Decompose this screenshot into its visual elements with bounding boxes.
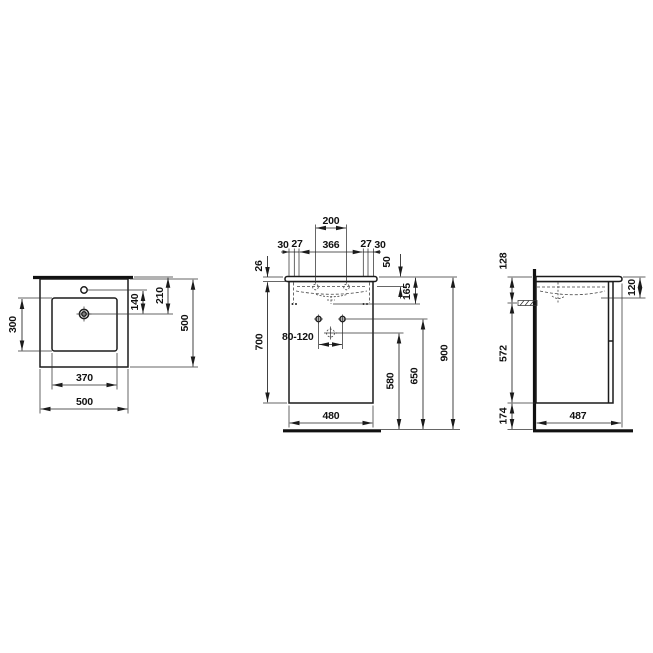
dim-bowl-inner-depth: 120 [626, 279, 638, 296]
dim-overall-width: 500 [76, 396, 93, 408]
cabinet-side [536, 282, 613, 404]
drawing-canvas: 300 140 210 500 370 500 [0, 0, 653, 653]
dim-basin-depth: 165 [401, 283, 413, 300]
dim-overall-depth: 500 [179, 314, 191, 331]
dim-fixing-centers: 200 [323, 215, 340, 227]
dim-bowl-width: 370 [76, 372, 93, 384]
dim-top-to-trap: 128 [498, 252, 510, 269]
dim-inner-width: 366 [323, 239, 340, 251]
front-view: 200 30 27 366 27 30 26 700 50 165 80-120… [253, 215, 460, 431]
dim-body-height: 572 [498, 345, 510, 362]
technical-drawing: 300 140 210 500 370 500 [0, 0, 653, 653]
side-view: 128 572 174 120 487 [498, 252, 646, 431]
dim-tap-to-drain: 140 [129, 293, 141, 310]
dim-floor-clearance: 174 [498, 407, 510, 424]
top-view: 300 140 210 500 370 500 [7, 277, 198, 414]
dim-drain-height: 580 [385, 372, 397, 389]
countertop-side [536, 277, 622, 282]
dim-top-thickness: 26 [253, 260, 265, 272]
dim-rear-to-drain: 210 [154, 287, 166, 304]
dim-rim-to-holes: 50 [381, 256, 393, 268]
dim-supply-height: 650 [409, 367, 421, 384]
dim-side-right: 30 [374, 239, 386, 251]
dim-bowl-depth: 300 [7, 316, 19, 333]
dim-side-left: 30 [277, 239, 289, 251]
dim-depth: 487 [570, 410, 587, 422]
dim-gap-right: 27 [360, 238, 372, 250]
dim-cabinet-width: 480 [323, 410, 340, 422]
dim-cabinet-height: 700 [254, 333, 266, 350]
dim-supply-spacing: 80-120 [282, 331, 314, 343]
dim-overall-height: 900 [439, 344, 451, 361]
countertop-front [285, 277, 377, 282]
dim-gap-left: 27 [291, 238, 303, 250]
basin-outline [40, 279, 128, 367]
